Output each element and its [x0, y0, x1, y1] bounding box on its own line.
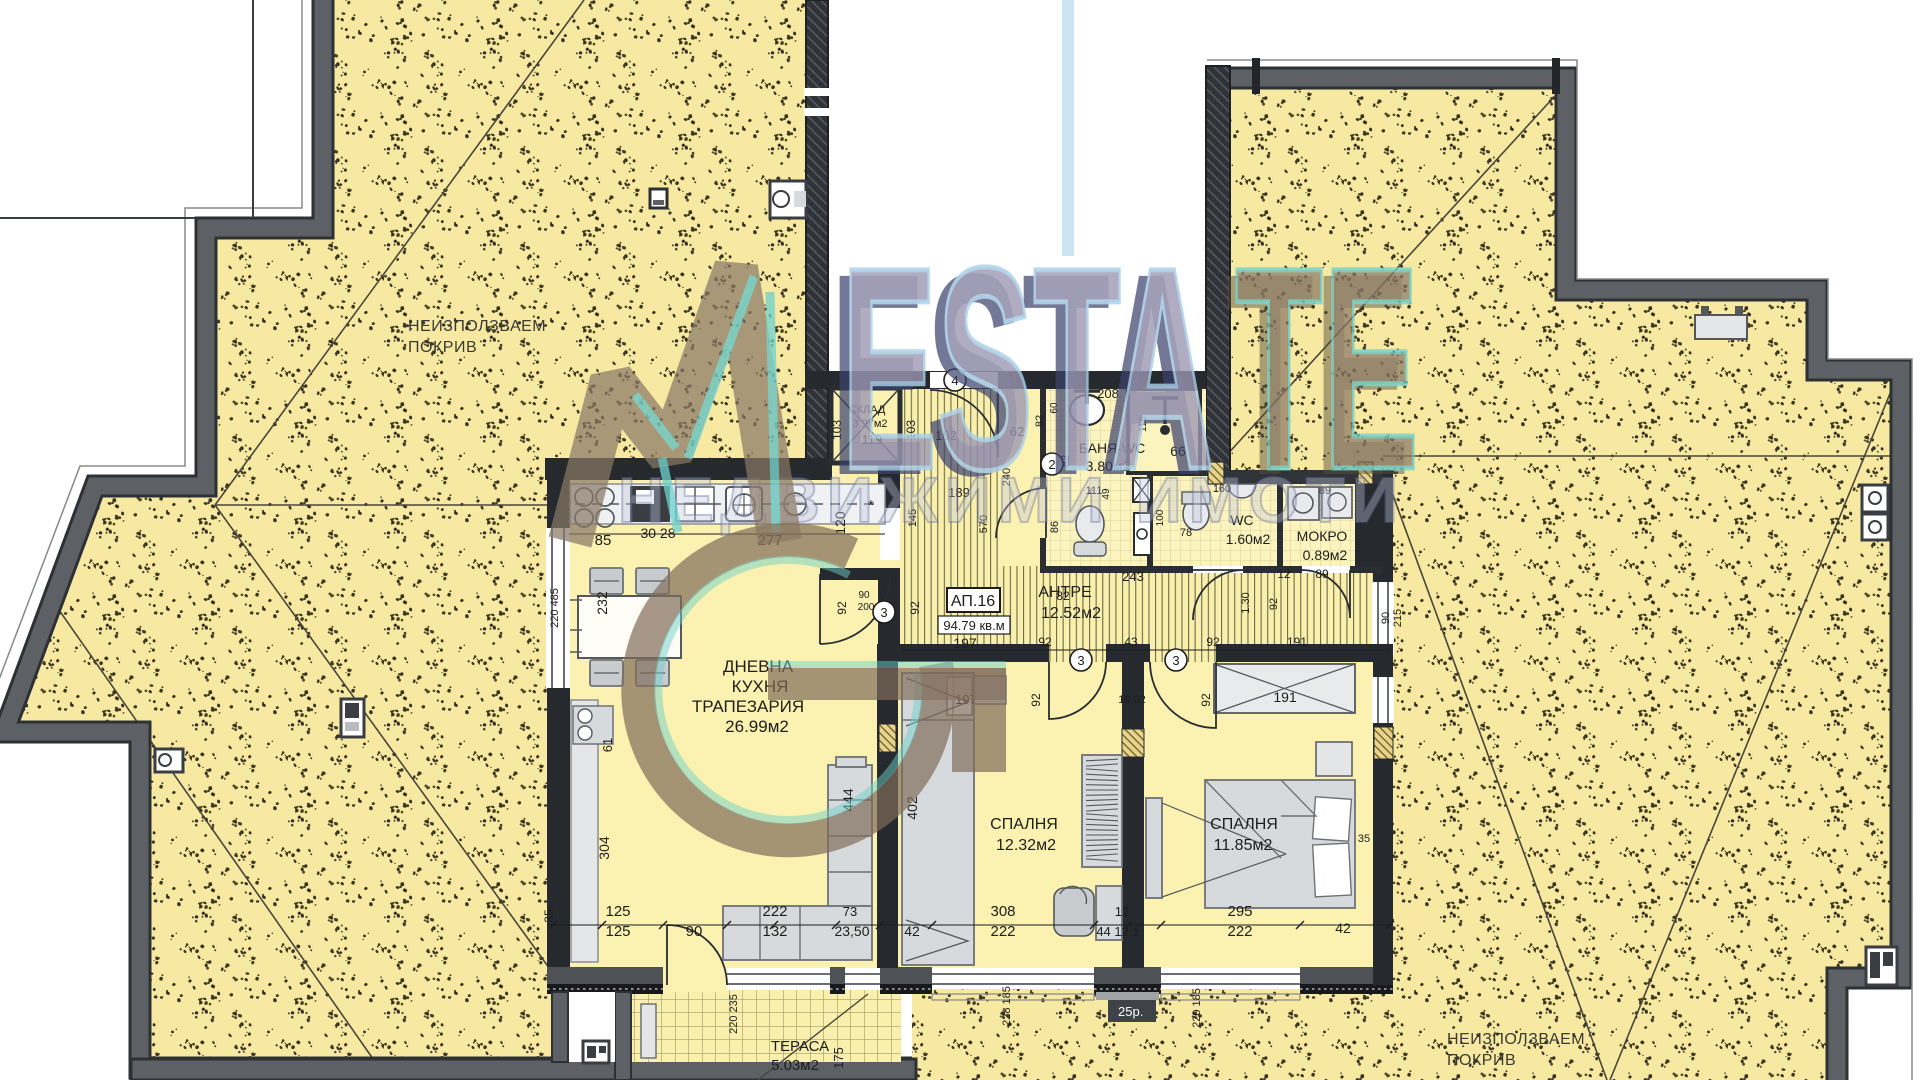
svg-text:5.03м2: 5.03м2: [771, 1057, 819, 1074]
svg-text:92: 92: [835, 601, 849, 615]
svg-text:92: 92: [908, 601, 922, 615]
svg-text:220 485: 220 485: [549, 588, 561, 628]
svg-text:197: 197: [953, 635, 977, 651]
svg-text:ТЕРАСА: ТЕРАСА: [771, 1038, 829, 1055]
svg-text:43: 43: [1124, 635, 1138, 649]
svg-text:92: 92: [1199, 693, 1213, 707]
svg-text:СПАЛНЯ: СПАЛНЯ: [990, 816, 1058, 833]
svg-text:12.52м2: 12.52м2: [1041, 605, 1101, 622]
svg-text:304: 304: [596, 836, 612, 860]
svg-text:222: 222: [990, 923, 1015, 940]
svg-text:222: 222: [1227, 923, 1252, 940]
svg-text:42: 42: [904, 923, 920, 939]
svg-text:94.79 кв.м: 94.79 кв.м: [943, 618, 1004, 633]
svg-text:191: 191: [1287, 635, 1307, 649]
svg-text:3: 3: [1077, 653, 1084, 668]
svg-text:90: 90: [686, 923, 703, 940]
svg-text:85: 85: [595, 532, 612, 549]
svg-text:243: 243: [1122, 569, 1144, 584]
svg-text:3: 3: [880, 605, 887, 620]
svg-text:42: 42: [1335, 920, 1351, 936]
svg-text:26.99м2: 26.99м2: [725, 717, 789, 736]
svg-text:220 185: 220 185: [1191, 988, 1203, 1028]
svg-text:12: 12: [1115, 904, 1129, 919]
svg-text:3: 3: [1172, 653, 1179, 668]
svg-text:35: 35: [542, 909, 556, 923]
svg-text:25p.: 25p.: [1118, 1004, 1143, 1019]
svg-text:АП.16: АП.16: [951, 593, 995, 610]
svg-text:92: 92: [1038, 635, 1052, 649]
svg-text:222: 222: [762, 903, 787, 920]
svg-text:232: 232: [594, 591, 610, 615]
svg-text:175: 175: [831, 1047, 846, 1069]
svg-text:89: 89: [1315, 567, 1329, 581]
svg-text:61: 61: [600, 738, 615, 752]
svg-text:35: 35: [1358, 833, 1370, 845]
svg-text:ПОКРИВ: ПОКРИВ: [408, 339, 477, 356]
svg-text:92: 92: [1268, 598, 1280, 610]
svg-text:1.30: 1.30: [1240, 592, 1252, 613]
svg-text:308: 308: [990, 903, 1015, 920]
svg-text:215: 215: [1392, 609, 1404, 627]
svg-text:92: 92: [1029, 693, 1043, 707]
svg-text:ESTA: ESTA: [841, 209, 1214, 530]
svg-text:НЕИЗПОЛЗВАЕМ: НЕИЗПОЛЗВАЕМ: [1447, 1031, 1585, 1048]
svg-text:125: 125: [605, 923, 630, 940]
svg-text:12.32м2: 12.32м2: [996, 837, 1056, 854]
svg-text:125: 125: [605, 903, 630, 920]
svg-text:0.89м2: 0.89м2: [1303, 547, 1348, 563]
svg-text:ПОКРИВ: ПОКРИВ: [1447, 1052, 1516, 1069]
svg-text:90: 90: [1380, 612, 1392, 624]
svg-text:СПАЛНЯ: СПАЛНЯ: [1210, 816, 1278, 833]
svg-text:295: 295: [1227, 903, 1252, 920]
svg-text:92: 92: [1206, 635, 1220, 649]
svg-text:82: 82: [1056, 589, 1070, 603]
svg-text:44 12,1: 44 12,1: [1096, 924, 1139, 939]
svg-text:TE: TE: [1235, 209, 1419, 530]
svg-text:90: 90: [858, 590, 870, 601]
svg-text:200: 200: [858, 602, 875, 613]
svg-text:132: 132: [762, 923, 787, 940]
svg-text:220 235: 220 235: [728, 994, 740, 1034]
svg-text:228 185: 228 185: [1001, 986, 1013, 1026]
svg-text:11.85м2: 11.85м2: [1214, 837, 1273, 854]
svg-text:73: 73: [843, 904, 857, 919]
svg-text:НЕИЗПОЛЗВАЕМ: НЕИЗПОЛЗВАЕМ: [408, 318, 546, 335]
svg-text:191: 191: [1273, 689, 1297, 705]
svg-text:19,02: 19,02: [1118, 694, 1146, 706]
svg-text:23,50: 23,50: [834, 923, 869, 939]
svg-text:12: 12: [1277, 567, 1291, 581]
